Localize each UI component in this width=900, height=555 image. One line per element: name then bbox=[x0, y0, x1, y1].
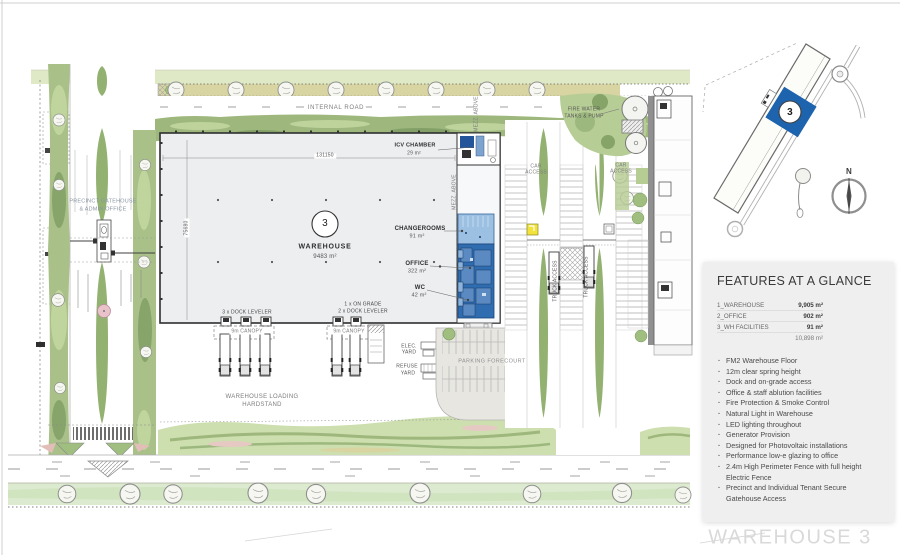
warehouse-name-label: WAREHOUSE bbox=[298, 244, 351, 251]
feature-item: Fire Protection & Smoke Control bbox=[717, 398, 869, 409]
panel-heading: FEATURES AT A GLANCE bbox=[717, 274, 880, 288]
dock-group2-leveler-label: 2 x DOCK LEVELER bbox=[338, 310, 388, 315]
drawing-title: WAREHOUSE 3 bbox=[708, 527, 872, 550]
mezz-above-label-2: MEZZ. ABOVE bbox=[453, 174, 458, 210]
area-label: 1_WAREHOUSE bbox=[717, 302, 764, 309]
refuse-yard-label-1: REFUSE bbox=[396, 365, 417, 370]
dock-group1-label: 3 x DOCK LEVELER bbox=[222, 311, 272, 316]
dock-group-1 bbox=[214, 317, 274, 376]
feature-item: 12m clear spring height bbox=[717, 367, 869, 378]
loading-hardstand-label-1: WAREHOUSE LOADING bbox=[226, 394, 299, 400]
feature-item: Office & staff ablution facilities bbox=[717, 388, 869, 399]
features-panel: FEATURES AT A GLANCE 1_WAREHOUSE 9,905 m… bbox=[703, 262, 894, 522]
refuse-yard-label-2: YARD bbox=[401, 372, 415, 377]
feature-item: Precinct and Individual Tenant Secure Ga… bbox=[717, 483, 869, 504]
changerooms-area: 91 m² bbox=[409, 234, 424, 240]
area-schedule: 1_WAREHOUSE 9,905 m² 2_OFFICE 902 m² 3_W… bbox=[717, 300, 823, 343]
feature-item: Performance low-e glazing to office bbox=[717, 451, 869, 462]
car-access-1-line2: ACCESS bbox=[525, 171, 547, 176]
feature-list: FM2 Warehouse Floor 12m clear spring hei… bbox=[717, 356, 869, 504]
feature-item: 2.4m High Perimeter Fence with full heig… bbox=[717, 462, 869, 483]
elec-refuse-yards bbox=[421, 342, 437, 379]
feature-item: Designed for Photovoltaic installations bbox=[717, 441, 869, 452]
canopy-label-1: 9m CANOPY bbox=[229, 330, 264, 335]
locator-building-number: 3 bbox=[787, 108, 793, 118]
icv-chamber-area: 29 m² bbox=[407, 152, 421, 157]
truck-access-label-2: TRUCK ACCESS bbox=[585, 256, 590, 297]
main-road-zone bbox=[36, 64, 156, 470]
area-row: 2_OFFICE 902 m² bbox=[717, 311, 823, 322]
truck-access-label-1: TRUCK ACCESS bbox=[554, 260, 559, 301]
car-access-2-line2: ACCESS bbox=[610, 170, 632, 175]
area-value: 902 m² bbox=[803, 313, 823, 320]
area-total-value: 10,898 m² bbox=[795, 335, 823, 342]
wc-area: 42 m² bbox=[411, 293, 426, 299]
site-plan-sheet: INTERNAL ROAD FIRE WATER TANKS & PUMP IC… bbox=[0, 0, 900, 555]
gatehouse-label-1: PRECINCT GATEHOUSE bbox=[69, 199, 136, 205]
area-value: 91 m² bbox=[807, 324, 823, 331]
office-area: 322 m² bbox=[408, 269, 426, 275]
office-block bbox=[458, 244, 494, 318]
feature-item: LED lighting throughout bbox=[717, 420, 869, 431]
changerooms-block bbox=[458, 214, 494, 244]
elec-yard-label-2: YARD bbox=[402, 351, 416, 356]
boundary-road-zone bbox=[8, 455, 765, 543]
feature-item: FM2 Warehouse Floor bbox=[717, 356, 869, 367]
icv-chamber-label: ICV CHAMBER bbox=[394, 143, 435, 149]
parking-forecourt-label: PARKING FORECOURT bbox=[458, 359, 525, 365]
area-value: 9,905 m² bbox=[798, 302, 823, 309]
area-row: 1_WAREHOUSE 9,905 m² bbox=[717, 300, 823, 311]
changerooms-label: CHANGEROOMS bbox=[395, 226, 446, 232]
fire-water-label-1: FIRE WATER bbox=[568, 108, 600, 113]
dock-group2-ongrade-label: 1 x ON GRADE bbox=[344, 303, 381, 308]
area-total-row: 10,898 m² bbox=[717, 333, 823, 343]
office-label: OFFICE bbox=[405, 261, 428, 267]
feature-item: Dock and on-grade access bbox=[717, 377, 869, 388]
pedestrian-crossing bbox=[73, 427, 133, 440]
area-label: 2_OFFICE bbox=[717, 313, 747, 320]
warehouse-building bbox=[160, 132, 500, 336]
internal-road-label: INTERNAL ROAD bbox=[306, 105, 366, 111]
dock-group-2 bbox=[327, 317, 384, 376]
wc-label: WC bbox=[415, 285, 425, 291]
gatehouse-building bbox=[97, 220, 111, 262]
icv-chamber bbox=[457, 133, 500, 165]
depth-dimension: 75680 bbox=[185, 219, 190, 238]
width-dimension: 131150 bbox=[314, 154, 336, 159]
area-row: 3_WH FACILITIES 91 m² bbox=[717, 322, 823, 333]
feature-item: Natural Light in Warehouse bbox=[717, 409, 869, 420]
fire-water-label-2: TANKS & PUMP bbox=[564, 115, 603, 120]
gatehouse-label-2: & ADMIN OFFICE bbox=[79, 207, 126, 213]
north-compass-icon bbox=[833, 178, 866, 214]
area-label: 3_WH FACILITIES bbox=[717, 324, 769, 331]
loading-hardstand-label-2: HARDSTAND bbox=[242, 402, 282, 408]
feature-item: Generator Provision bbox=[717, 430, 869, 441]
mezz-above-label-1: MEZZ. ABOVE bbox=[475, 96, 480, 132]
compass-north-label: N bbox=[846, 168, 852, 176]
pond-icon bbox=[796, 169, 811, 184]
locator-map bbox=[703, 43, 866, 237]
canopy-label-2: 9m CANOPY bbox=[331, 330, 366, 335]
warehouse-number-label: 3 bbox=[322, 219, 328, 229]
warehouse-area-label: 9483 m² bbox=[313, 254, 336, 260]
